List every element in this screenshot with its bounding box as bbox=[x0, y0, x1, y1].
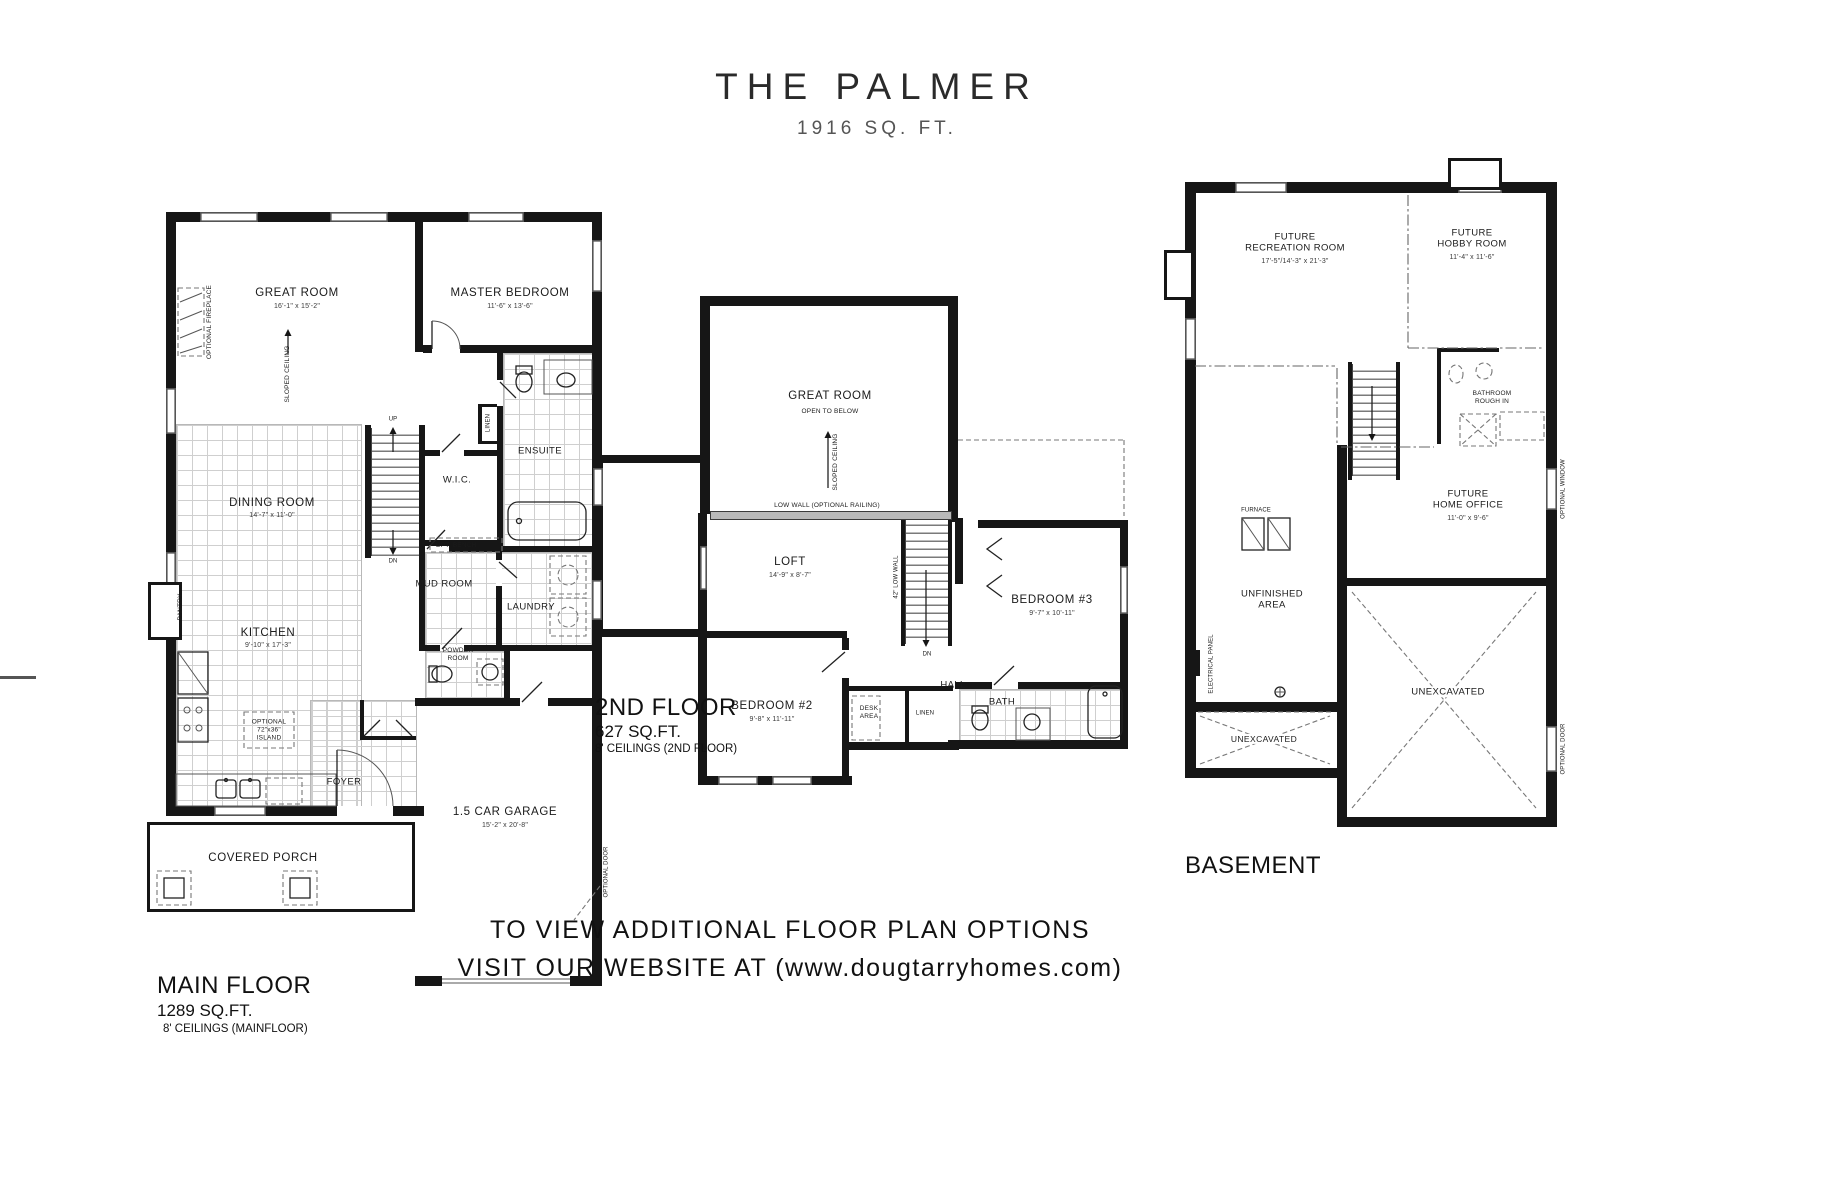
annotation-42-low-wall: 42" LOW WALL bbox=[893, 555, 900, 598]
room-dims-home-office: 11'-0" x 9'-6" bbox=[1447, 515, 1488, 523]
annotation-furnace: FURNACE bbox=[1241, 507, 1271, 514]
room-dims-bedroom-2: 9'-8" x 11'-11" bbox=[749, 716, 794, 724]
bath-tub-icon bbox=[1088, 686, 1122, 738]
room-label-unexcavated-large: UNEXCAVATED bbox=[1407, 686, 1489, 697]
annotation-linen-main: LINEN bbox=[485, 414, 492, 432]
rough-in-line1: BATHROOM bbox=[1473, 390, 1512, 398]
room-dims-recreation: 17'-5"/14'-3" x 21'-3" bbox=[1261, 258, 1328, 266]
room-label-desk-area: DESK AREA bbox=[860, 705, 879, 721]
roofline-dashes-2nd bbox=[958, 440, 1124, 516]
room-label-recreation: FUTURE RECREATION ROOM bbox=[1245, 232, 1345, 255]
room-label-mud-room: MUD ROOM bbox=[415, 578, 472, 589]
room-label-unfinished-area: UNFINISHED AREA bbox=[1241, 589, 1303, 612]
room-label-unexcavated-small: UNEXCAVATED bbox=[1228, 734, 1300, 744]
annotation-optional-fireplace: OPTIONAL FIREPLACE bbox=[206, 285, 214, 359]
kitchen-counter-icon bbox=[176, 774, 336, 806]
stair-arrow-basement bbox=[1369, 386, 1376, 441]
home-office-line1: FUTURE bbox=[1433, 489, 1503, 500]
bath-sink-icon bbox=[1016, 708, 1050, 740]
annotation-low-wall: LOW WALL (OPTIONAL RAILING) bbox=[774, 502, 880, 510]
recreation-line1: FUTURE bbox=[1245, 232, 1345, 243]
hobby-line2: HOBBY ROOM bbox=[1437, 239, 1506, 250]
room-dims-great-room: 16'-1" x 15'-2" bbox=[274, 303, 320, 311]
room-label-hobby: FUTURE HOBBY ROOM bbox=[1437, 228, 1506, 251]
annotation-optional-window: OPTIONAL WINDOW bbox=[1560, 459, 1567, 519]
annotation-stairs-up: UP bbox=[389, 416, 398, 423]
electrical-panel-icon bbox=[1191, 650, 1200, 676]
room-label-home-office: FUTURE HOME OFFICE bbox=[1433, 489, 1503, 512]
kitchen-double-sink-icon bbox=[216, 779, 260, 799]
furnace-icon bbox=[1242, 518, 1290, 550]
rough-in-shower-icon bbox=[1460, 414, 1496, 446]
room-label-covered-porch: COVERED PORCH bbox=[208, 852, 317, 866]
footer-line1: TO VIEW ADDITIONAL FLOOR PLAN OPTIONS bbox=[240, 916, 1340, 945]
powder-toilet-icon bbox=[429, 666, 452, 682]
sloped-ceiling-arrow-2nd bbox=[825, 431, 832, 488]
annotation-stairs-dn-2nd: DN bbox=[923, 651, 932, 658]
porch-post-icons bbox=[157, 871, 317, 905]
room-label-dining-room: DINING ROOM bbox=[229, 497, 315, 511]
room-dims-hobby: 11'-4" x 11'-6" bbox=[1449, 254, 1494, 262]
room-label-hall: HALL bbox=[940, 679, 965, 690]
room-label-powder-room: POWDER ROOM bbox=[443, 647, 473, 663]
room-dims-dining-room: 14'-7" x 11'-0" bbox=[249, 512, 295, 520]
annotation-optional-door-garage: OPTIONAL DOOR bbox=[603, 846, 610, 897]
powder-sink-icon bbox=[477, 659, 503, 685]
room-label-foyer: FOYER bbox=[327, 776, 362, 787]
footer-line2: VISIT OUR WEBSITE AT (www.dougtarryhomes… bbox=[240, 954, 1340, 983]
annotation-electrical-panel: ELECTRICAL PANEL bbox=[1208, 634, 1215, 693]
stair-arrow-2nd bbox=[923, 570, 930, 647]
annotation-stairs-dn-main: DN bbox=[389, 558, 398, 565]
room-label-bedroom-3: BEDROOM #3 bbox=[1011, 594, 1092, 608]
stove-icon bbox=[178, 698, 208, 742]
annotation-optional-island: OPTIONAL 72"x36" ISLAND bbox=[252, 718, 286, 741]
room-label-garage: 1.5 CAR GARAGE bbox=[453, 806, 557, 820]
annotation-sloped-ceiling-main: SLOPED CEILING bbox=[284, 346, 292, 403]
room-label-wic: W.I.C. bbox=[443, 474, 471, 485]
room-label-loft: LOFT bbox=[774, 556, 806, 570]
caption-main-floor-ceilings: 8' CEILINGS (MAINFLOOR) bbox=[163, 1023, 308, 1035]
ensuite-toilet-icon bbox=[516, 366, 532, 392]
dishwasher-icon bbox=[266, 778, 302, 804]
fridge-icon bbox=[178, 652, 208, 694]
rough-in-sink-icon bbox=[1476, 363, 1492, 379]
caption-basement-title: BASEMENT bbox=[1185, 852, 1321, 880]
room-label-master-bedroom: MASTER BEDROOM bbox=[451, 287, 570, 301]
room-label-kitchen: KITCHEN bbox=[241, 627, 296, 641]
annotation-sloped-ceiling-2nd: SLOPED CEILING bbox=[832, 434, 840, 491]
annotation-optional-door-basement: OPTIONAL DOOR bbox=[1560, 723, 1567, 774]
room-label-great-room: GREAT ROOM bbox=[255, 287, 339, 301]
desk-area-line2: AREA bbox=[860, 713, 879, 721]
floor-plan-sheet: THE PALMER 1916 SQ. FT. bbox=[0, 0, 1836, 1188]
room-label-bathroom-rough-in: BATHROOM ROUGH IN bbox=[1473, 390, 1512, 406]
caption-main-floor-sqft: 1289 SQ.FT. bbox=[157, 1001, 252, 1021]
room-dims-kitchen: 9'-10" x 17'-3" bbox=[245, 642, 291, 650]
room-dims-bedroom-3: 9'-7" x 10'-11" bbox=[1029, 610, 1075, 618]
room-dims-loft: 14'-9" x 8'-7" bbox=[769, 572, 811, 580]
home-office-line2: HOME OFFICE bbox=[1433, 500, 1503, 511]
optional-fireplace-icon bbox=[178, 288, 204, 356]
room-label-bath: BATH bbox=[989, 696, 1015, 707]
island-line1: OPTIONAL bbox=[252, 718, 286, 726]
washer-dryer-icons bbox=[550, 556, 586, 636]
room-label-ensuite: ENSUITE bbox=[518, 445, 562, 456]
unexcavated-x-large bbox=[1352, 592, 1536, 808]
annotation-pantry: PANTRY bbox=[177, 594, 185, 621]
floor-drain-icon bbox=[1275, 687, 1285, 697]
caption-2nd-floor-sqft: 627 SQ.FT. bbox=[595, 722, 681, 742]
caption-2nd-floor-ceilings: 8' CEILINGS (2ND FLOOR) bbox=[595, 743, 737, 755]
room-label-linen-2nd: LINEN bbox=[916, 710, 934, 717]
hobby-line1: FUTURE bbox=[1437, 228, 1506, 239]
annotation-opt-bench: OPT. BENCH bbox=[435, 542, 476, 550]
plan-linework bbox=[0, 0, 1836, 1188]
powder-room-line1: POWDER bbox=[443, 647, 473, 655]
stair-direction-arrows-main bbox=[390, 427, 397, 555]
desk-area-line1: DESK bbox=[860, 705, 879, 713]
caption-2nd-floor-title: 2ND FLOOR bbox=[595, 694, 737, 722]
footer-note: TO VIEW ADDITIONAL FLOOR PLAN OPTIONS VI… bbox=[240, 916, 1340, 992]
island-line3: ISLAND bbox=[252, 734, 286, 742]
rough-in-line2: ROUGH IN bbox=[1473, 398, 1512, 406]
room-dims-garage: 15'-2" x 20'-8" bbox=[482, 822, 528, 830]
ensuite-sink-icon bbox=[544, 360, 592, 394]
annotation-open-to-below: OPEN TO BELOW bbox=[802, 408, 859, 416]
ensuite-bathtub-icon bbox=[508, 502, 586, 540]
bath-toilet-icon bbox=[972, 706, 988, 730]
bedroom3-closet-door-icons bbox=[987, 538, 1002, 597]
rough-in-toilet-icon bbox=[1449, 365, 1463, 383]
room-label-laundry: LAUNDRY bbox=[507, 601, 555, 612]
powder-room-line2: ROOM bbox=[443, 655, 473, 663]
rough-in-tub-icon bbox=[1500, 412, 1544, 440]
room-dims-master-bedroom: 11'-6" x 13'-6" bbox=[487, 303, 533, 311]
master-door-swing-icon bbox=[432, 321, 460, 349]
recreation-line2: RECREATION ROOM bbox=[1245, 243, 1345, 254]
room-label-great-room-2nd: GREAT ROOM bbox=[788, 390, 872, 404]
unfinished-line2: AREA bbox=[1241, 600, 1303, 611]
bath-door-leaf-icons bbox=[822, 652, 1014, 685]
room-label-bedroom-2: BEDROOM #2 bbox=[731, 700, 812, 714]
island-line2: 72"x36" bbox=[252, 726, 286, 734]
unfinished-line1: UNFINISHED bbox=[1241, 589, 1303, 600]
